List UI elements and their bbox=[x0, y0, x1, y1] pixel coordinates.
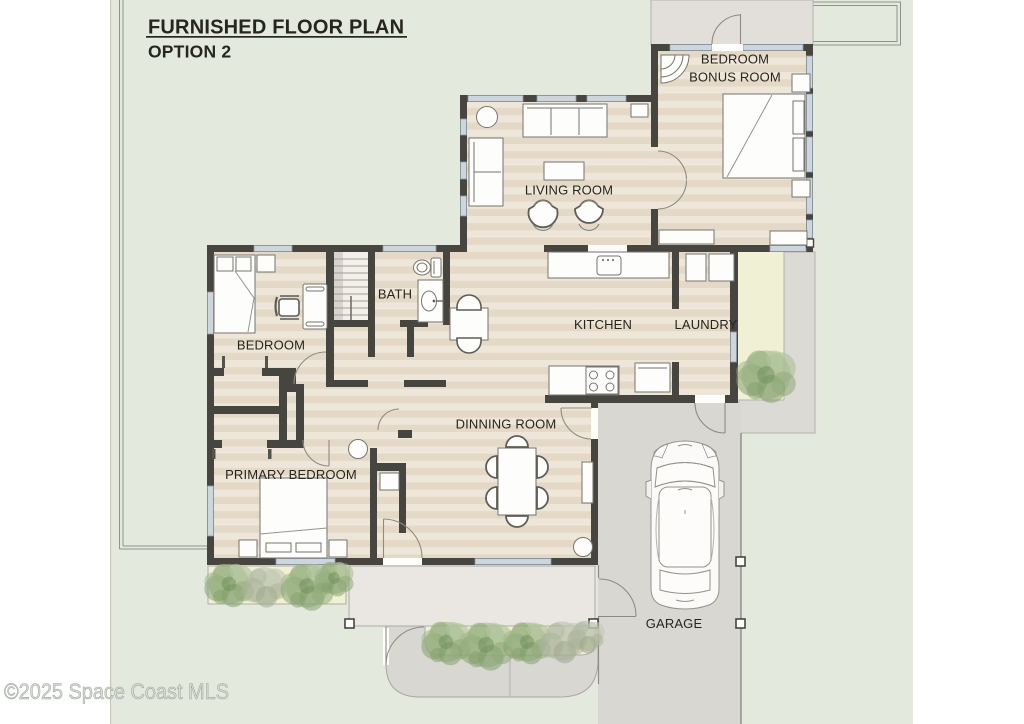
svg-text:PRIMARY BEDROOM: PRIMARY BEDROOM bbox=[225, 467, 357, 482]
svg-text:©2025 Space Coast MLS: ©2025 Space Coast MLS bbox=[4, 679, 229, 704]
svg-text:GARAGE: GARAGE bbox=[646, 616, 703, 631]
svg-text:BONUS ROOM: BONUS ROOM bbox=[689, 70, 781, 85]
svg-text:OPTION 2: OPTION 2 bbox=[148, 42, 231, 62]
svg-text:LAUNDRY: LAUNDRY bbox=[675, 317, 738, 332]
svg-text:KITCHEN: KITCHEN bbox=[574, 317, 632, 332]
svg-text:LIVING ROOM: LIVING ROOM bbox=[525, 183, 613, 198]
svg-text:BEDROOM: BEDROOM bbox=[701, 52, 769, 67]
svg-text:BATH: BATH bbox=[378, 287, 412, 302]
svg-text:BEDROOM: BEDROOM bbox=[237, 338, 305, 353]
svg-text:FURNISHED FLOOR PLAN: FURNISHED FLOOR PLAN bbox=[148, 17, 404, 39]
svg-text:DINNING ROOM: DINNING ROOM bbox=[456, 417, 557, 432]
